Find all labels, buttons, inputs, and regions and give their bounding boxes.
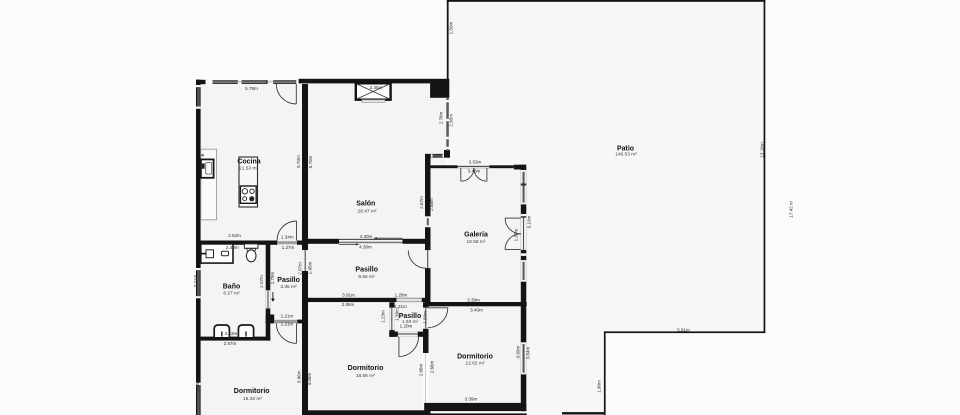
svg-text:2.07m: 2.07m — [259, 275, 264, 288]
svg-text:2.52m: 2.52m — [228, 233, 241, 238]
svg-text:Pasillo: Pasillo — [277, 277, 300, 284]
svg-text:2.95m: 2.95m — [342, 302, 355, 307]
svg-text:2.57m: 2.57m — [224, 341, 237, 346]
svg-text:Dormitorio: Dormitorio — [457, 353, 493, 360]
svg-text:1.00m: 1.00m — [423, 311, 428, 324]
svg-text:2.78m: 2.78m — [439, 111, 444, 124]
svg-text:28.47 m²: 28.47 m² — [358, 208, 377, 214]
svg-text:Cocina: Cocina — [237, 159, 260, 166]
svg-text:1.20m: 1.20m — [400, 324, 413, 329]
svg-text:Dormitorio: Dormitorio — [348, 365, 384, 372]
svg-text:1.21m: 1.21m — [281, 313, 294, 318]
svg-text:2.07m: 2.07m — [298, 262, 303, 275]
svg-text:1.21m: 1.21m — [281, 322, 294, 327]
svg-text:13.16m: 13.16m — [760, 142, 765, 157]
svg-text:Pasillo: Pasillo — [355, 267, 378, 274]
svg-text:2.35m: 2.35m — [370, 85, 383, 90]
svg-text:12.62 m²: 12.62 m² — [466, 361, 485, 367]
svg-text:1.34m: 1.34m — [281, 234, 294, 239]
svg-text:4.08m: 4.08m — [307, 372, 312, 385]
svg-text:1.95m: 1.95m — [308, 261, 313, 274]
svg-text:3.39m: 3.39m — [465, 397, 478, 402]
svg-text:3.84m: 3.84m — [525, 346, 530, 359]
svg-text:3.46m: 3.46m — [468, 169, 481, 174]
svg-text:2.66m: 2.66m — [419, 363, 424, 376]
svg-text:2.95m: 2.95m — [449, 114, 454, 127]
svg-text:2.68m: 2.68m — [430, 360, 435, 373]
svg-text:Patio: Patio — [617, 145, 634, 152]
svg-text:5.91m: 5.91m — [677, 327, 690, 332]
svg-text:Salón: Salón — [356, 201, 375, 208]
svg-text:Galería: Galería — [464, 232, 488, 239]
svg-text:1.90m: 1.90m — [597, 380, 602, 393]
svg-text:2.43m: 2.43m — [225, 331, 238, 336]
svg-text:1.50m: 1.50m — [449, 21, 454, 34]
svg-text:3.91m: 3.91m — [342, 292, 355, 297]
svg-text:Pasillo: Pasillo — [399, 313, 422, 320]
svg-text:1.23m: 1.23m — [381, 310, 386, 323]
svg-text:2.68m: 2.68m — [429, 198, 434, 211]
svg-text:1.27m: 1.27m — [282, 245, 295, 250]
svg-text:1.38m: 1.38m — [394, 308, 399, 321]
svg-text:3.35 m²: 3.35 m² — [280, 284, 297, 290]
svg-text:Dormitorio: Dormitorio — [234, 388, 270, 395]
svg-text:2.40m: 2.40m — [226, 245, 239, 250]
svg-text:17.42 m: 17.42 m — [789, 201, 794, 218]
svg-text:1.28m: 1.28m — [395, 293, 408, 298]
svg-text:5.70m: 5.70m — [308, 155, 313, 168]
svg-text:16.58 m²: 16.58 m² — [467, 239, 486, 245]
svg-text:3.39m: 3.39m — [467, 297, 480, 302]
svg-text:8.27 m²: 8.27 m² — [223, 291, 240, 297]
svg-text:2.79m: 2.79m — [270, 271, 275, 284]
svg-text:18.55 m²: 18.55 m² — [356, 373, 375, 379]
svg-text:2.67m: 2.67m — [419, 196, 424, 209]
svg-text:4.30m: 4.30m — [360, 234, 373, 239]
svg-text:1.07m: 1.07m — [514, 228, 519, 241]
svg-text:15.33 m²: 15.33 m² — [243, 396, 262, 402]
svg-text:21.53 m²: 21.53 m² — [239, 165, 258, 171]
svg-text:4.30m: 4.30m — [359, 245, 372, 250]
svg-text:3.86m: 3.86m — [195, 379, 200, 392]
svg-text:3.41m: 3.41m — [193, 274, 198, 287]
svg-text:8.56 m²: 8.56 m² — [358, 274, 375, 280]
svg-text:0.99m: 0.99m — [515, 345, 520, 358]
svg-text:3.40m: 3.40m — [470, 307, 483, 312]
svg-text:146.53 m²: 146.53 m² — [615, 152, 637, 158]
svg-text:5.10m: 5.10m — [527, 215, 532, 228]
svg-text:5.70m: 5.70m — [296, 155, 301, 168]
svg-text:5.78m: 5.78m — [245, 86, 258, 91]
svg-text:3.96m: 3.96m — [296, 370, 301, 383]
svg-text:Baño: Baño — [223, 284, 241, 291]
svg-text:3.53m: 3.53m — [469, 159, 482, 164]
